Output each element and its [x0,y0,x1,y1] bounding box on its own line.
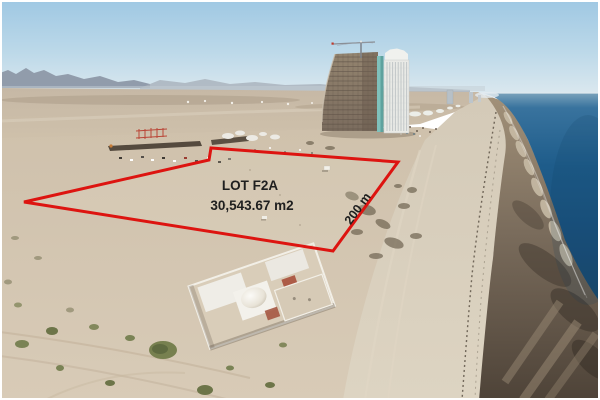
aerial-photo: LOT F2A 30,543.67 m2 200 m [0,0,600,400]
glass-core [377,56,381,132]
lot-name-label: LOT F2A [222,178,278,193]
white-tower [384,49,409,134]
excavator [109,144,112,147]
distant-tower [469,92,473,103]
distant-tower [447,90,453,104]
lot-area-label: 30,543.67 m2 [210,198,293,213]
screenshot-root: LOT F2A 30,543.67 m2 200 m [0,0,600,400]
